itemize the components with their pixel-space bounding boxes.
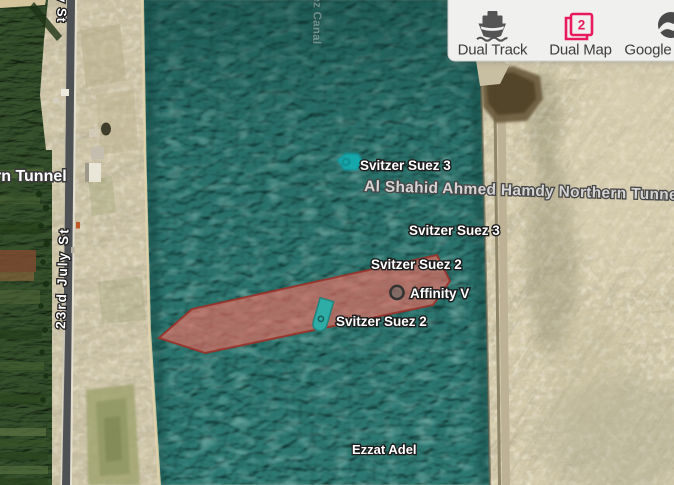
svg-text:Svitzer Suez 2: Svitzer Suez 2 bbox=[371, 257, 462, 272]
svg-text:y St: y St bbox=[54, 0, 70, 23]
svg-text:Ezzat Adel: Ezzat Adel bbox=[352, 442, 417, 457]
svg-text:2: 2 bbox=[578, 18, 586, 33]
svg-text:Svitzer Suez 2: Svitzer Suez 2 bbox=[336, 314, 427, 329]
svg-text:Dual Map: Dual Map bbox=[549, 42, 612, 59]
svg-text:Svitzer Suez 3: Svitzer Suez 3 bbox=[360, 158, 451, 173]
svg-text:Svitzer Suez 3: Svitzer Suez 3 bbox=[409, 223, 500, 238]
svg-text:Dual Track: Dual Track bbox=[458, 42, 528, 59]
svg-text:Affinity V: Affinity V bbox=[410, 286, 469, 301]
svg-text:uez Canal: uez Canal bbox=[310, 0, 323, 45]
svg-text:rn Tunnel: rn Tunnel bbox=[0, 168, 67, 185]
svg-text:Google: Google bbox=[624, 42, 671, 59]
